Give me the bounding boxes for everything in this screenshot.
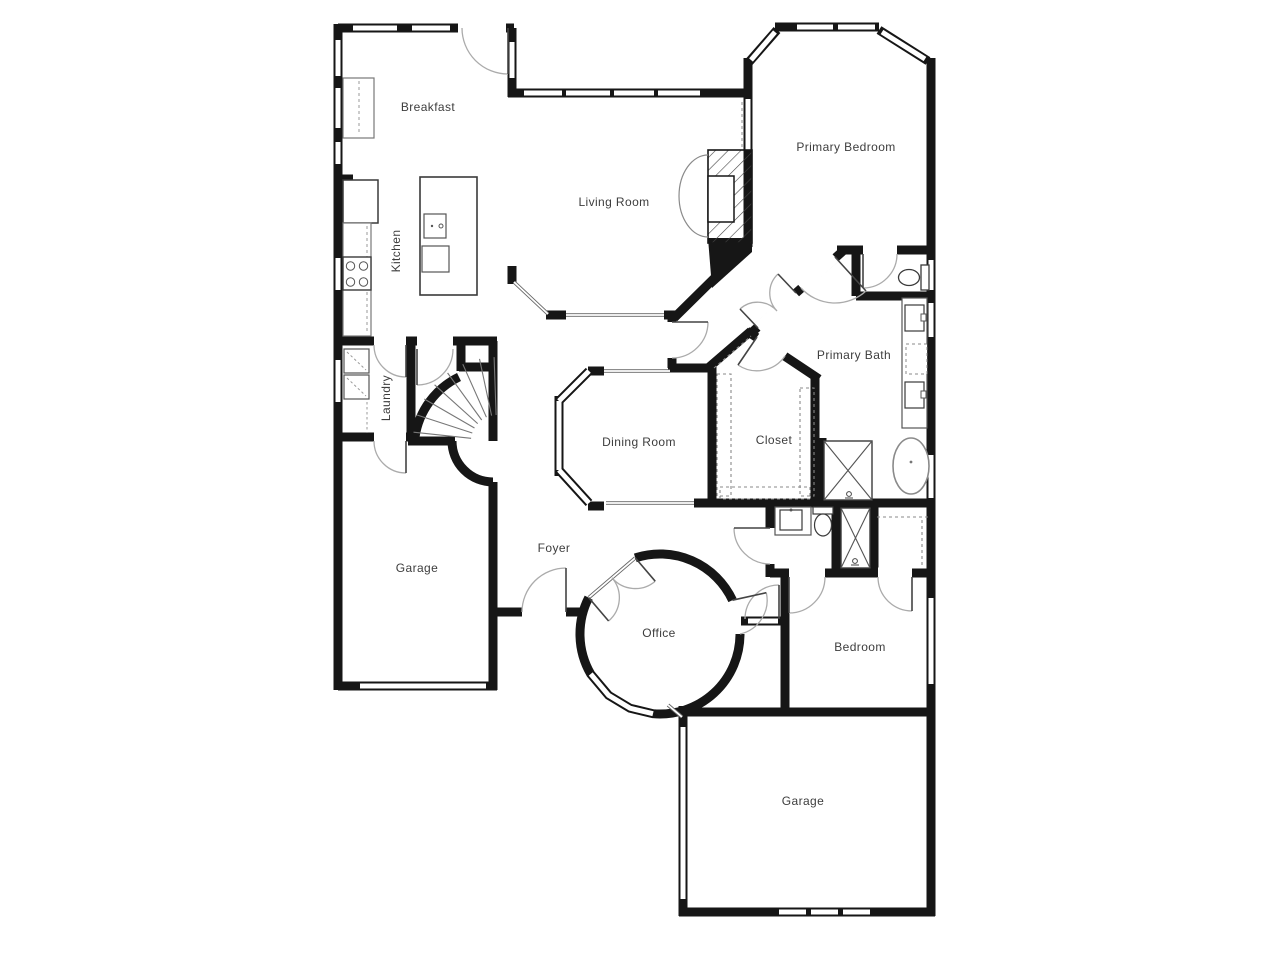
door-arcs	[374, 28, 912, 634]
bedroom-closet-shelves	[877, 517, 928, 568]
hall-sink	[780, 510, 802, 530]
makeup-counter-dashed	[906, 344, 927, 374]
room-label-living-room: Living Room	[578, 195, 649, 209]
vanity-faucet-1	[921, 314, 926, 321]
room-label-garage-left: Garage	[396, 561, 438, 575]
room-label-primary-bedroom: Primary Bedroom	[796, 140, 895, 154]
toilet-tank-icon	[921, 265, 929, 290]
room-label-foyer: Foyer	[538, 541, 571, 555]
floor-plan-canvas: Breakfast Kitchen Living Room Primary Be…	[0, 0, 1280, 960]
bathtub-icon	[893, 438, 929, 494]
vanity-faucet-2	[921, 391, 926, 398]
hall-toilet-tank	[813, 507, 833, 514]
hall-toilet-bowl	[815, 514, 832, 536]
hall-faucet	[790, 509, 793, 512]
island-faucet-dot	[431, 225, 433, 227]
fireplace-hearth-arc	[679, 155, 708, 237]
room-label-office: Office	[642, 626, 676, 640]
floor-plan-svg: Breakfast Kitchen Living Room Primary Be…	[0, 0, 1280, 960]
room-label-closet: Closet	[756, 433, 793, 447]
room-label-bedroom: Bedroom	[834, 640, 886, 654]
room-label-garage-bottom: Garage	[782, 794, 824, 808]
toilet-bowl-icon	[899, 270, 920, 286]
room-label-breakfast: Breakfast	[401, 100, 456, 114]
island-cooktop-icon	[422, 246, 449, 272]
fireplace	[679, 102, 752, 243]
room-label-dining-room: Dining Room	[602, 435, 676, 449]
room-label-kitchen: Kitchen	[389, 230, 403, 273]
refrigerator-icon	[343, 180, 378, 223]
hall-bath-fixtures	[775, 507, 928, 568]
door-arc-layer	[374, 28, 912, 634]
laundry-fixtures	[344, 349, 369, 433]
room-label-laundry: Laundry	[379, 375, 393, 421]
diagonal-wall-fill	[708, 238, 752, 288]
kitchen-fixtures	[343, 78, 477, 336]
room-label-primary-bath: Primary Bath	[817, 348, 891, 362]
fireplace-firebox	[708, 176, 734, 222]
bathtub-drain	[910, 461, 913, 464]
